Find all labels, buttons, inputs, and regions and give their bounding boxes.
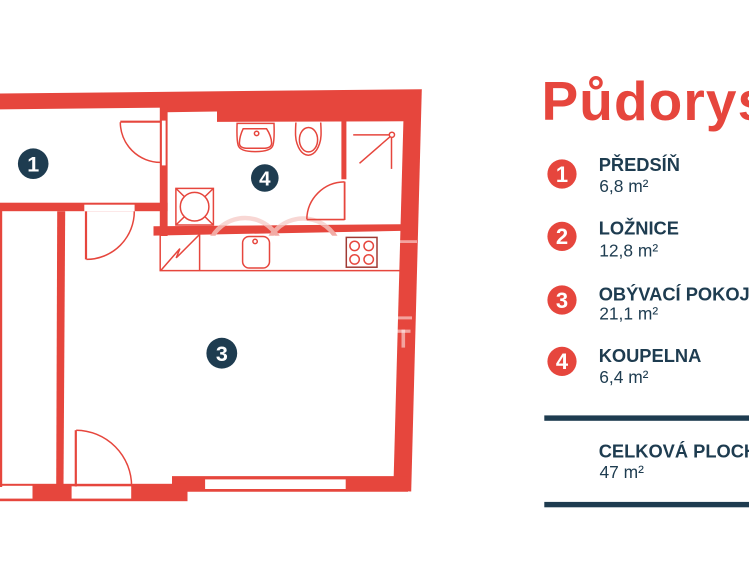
svg-text:CELKOVÁ PLOCHA: CELKOVÁ PLOCHA [599,441,749,462]
svg-text:Půdorys: Půdorys [542,70,749,132]
svg-text:6,4 m²: 6,4 m² [599,367,648,387]
svg-text:4: 4 [259,167,271,190]
svg-text:KOUPELNA: KOUPELNA [599,345,702,366]
svg-text:2: 2 [556,224,568,249]
svg-text:4: 4 [556,349,569,374]
svg-text:6,8 m²: 6,8 m² [599,176,648,196]
svg-text:LOŽNICE: LOŽNICE [599,218,679,239]
svg-text:OBÝVACÍ POKOJ: OBÝVACÍ POKOJ [599,283,749,304]
svg-text:1: 1 [27,152,39,176]
svg-text:47 m²: 47 m² [600,462,645,482]
svg-text:21,1 m²: 21,1 m² [599,304,658,324]
svg-text:3: 3 [216,342,228,366]
svg-text:12,8 m²: 12,8 m² [599,240,658,260]
svg-text:PŘEDSÍŇ: PŘEDSÍŇ [599,154,680,175]
svg-text:1: 1 [556,162,568,187]
svg-text:3: 3 [556,288,568,313]
